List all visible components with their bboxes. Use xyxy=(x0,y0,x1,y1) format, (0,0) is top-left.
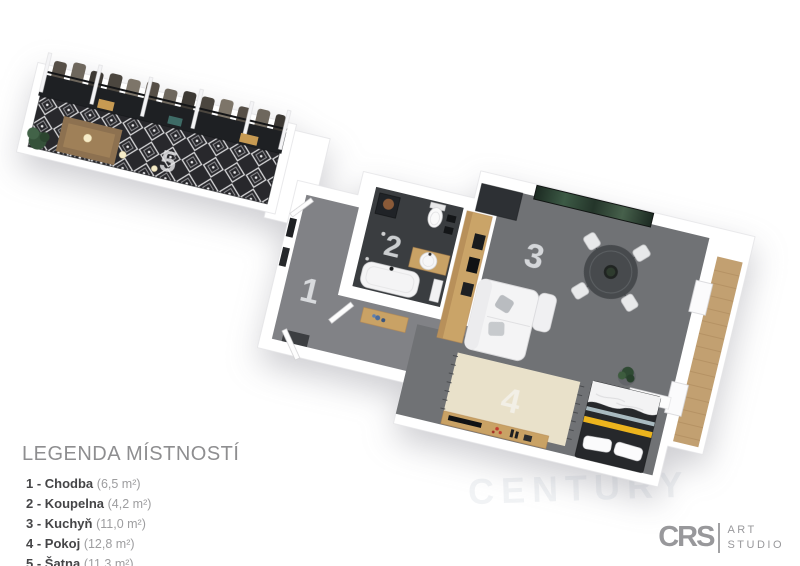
legend-item: 3 - Kuchyň (11,0 m²) xyxy=(26,514,239,534)
logo-divider xyxy=(718,523,720,553)
logo-subtext: ART STUDIO xyxy=(727,523,784,552)
floorplan-render: CENTURY xyxy=(0,0,800,566)
studio-logo: CRS ART STUDIO xyxy=(658,521,784,554)
legend-title: LEGENDA MÍSTNOSTÍ xyxy=(22,443,239,466)
legend-item: 2 - Koupelna (4,2 m²) xyxy=(26,494,239,514)
logo-brand-text: CRS xyxy=(658,521,713,554)
legend-item: 1 - Chodba (6,5 m²) xyxy=(26,474,239,494)
legend-item: 4 - Pokoj (12,8 m²) xyxy=(26,534,239,554)
apartment-plan: 5 xyxy=(0,51,758,496)
legend-item: 5 - Šatna (11,3 m²) xyxy=(26,554,239,566)
logo-line-art: ART xyxy=(727,523,784,537)
logo-line-studio: STUDIO xyxy=(727,538,784,552)
legend-items: 1 - Chodba (6,5 m²) 2 - Koupelna (4,2 m²… xyxy=(22,474,239,566)
room-satna: 5 xyxy=(16,51,299,214)
legend: LEGENDA MÍSTNOSTÍ 1 - Chodba (6,5 m²) 2 … xyxy=(22,443,239,566)
